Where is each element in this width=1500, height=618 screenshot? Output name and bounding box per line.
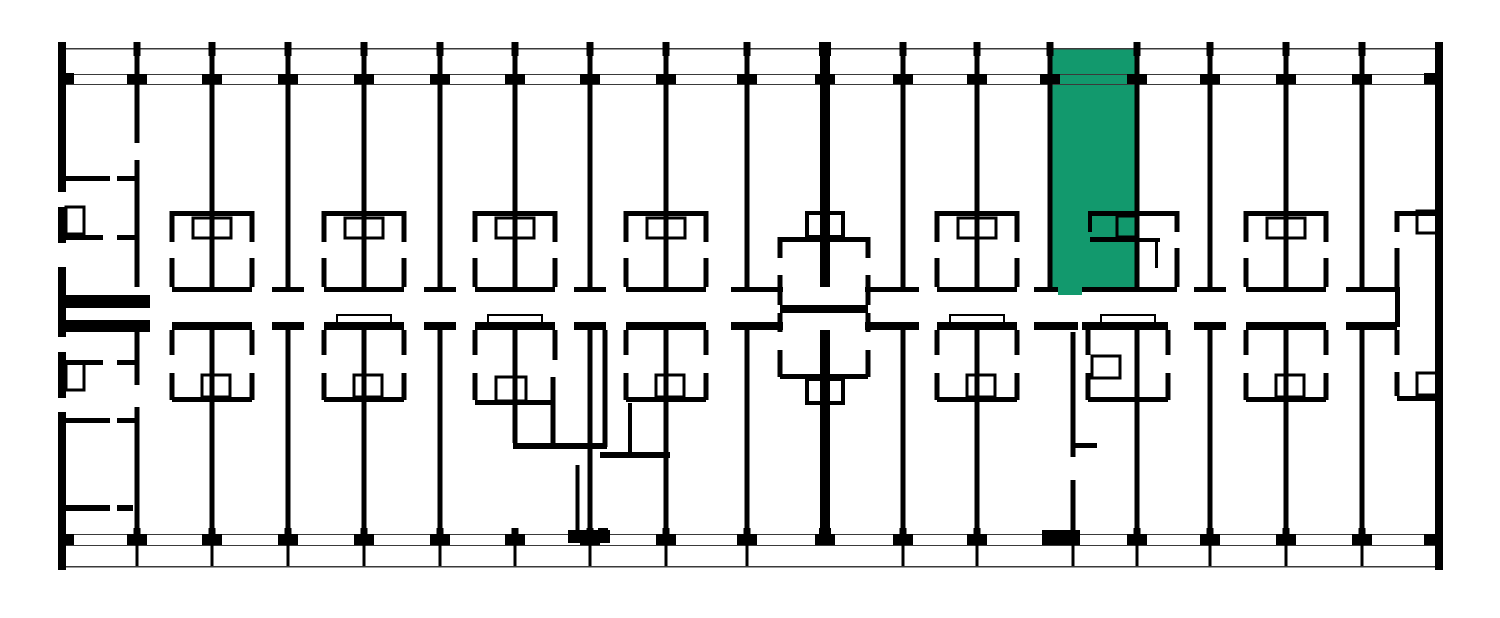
wall-segment — [324, 287, 404, 292]
wall-segment — [58, 295, 150, 308]
column-block — [1283, 528, 1290, 545]
wall-segment — [286, 330, 291, 545]
column-block — [1359, 528, 1366, 545]
fixtures-layer — [66, 207, 1437, 403]
wall-segment — [250, 373, 255, 400]
wall-segment — [778, 350, 783, 377]
wall-segment — [1395, 330, 1400, 355]
balcony-facade-lines-layer — [58, 48, 1443, 568]
wall-segment — [553, 330, 558, 360]
wall-segment — [513, 443, 607, 449]
wall-segment — [475, 211, 555, 216]
column-block — [1361, 545, 1364, 566]
column-block — [656, 74, 676, 84]
wall-segment — [286, 49, 291, 287]
column-block — [1209, 48, 1212, 74]
column-block — [1200, 74, 1220, 84]
wall-segment — [1244, 330, 1249, 355]
wall-segment — [1395, 248, 1400, 287]
wall-segment — [1086, 330, 1091, 355]
wall-segment — [117, 235, 137, 240]
column-block — [512, 528, 519, 545]
wall-segment — [1175, 211, 1180, 232]
fixture-outline — [1417, 373, 1437, 395]
wall-segment — [170, 211, 175, 242]
wall-segment — [117, 176, 137, 181]
wall-segment — [704, 373, 709, 400]
column-block — [1285, 48, 1288, 74]
wall-segment — [250, 258, 255, 287]
wall-segment — [866, 313, 871, 332]
column-block — [744, 528, 751, 545]
wall-segment — [1324, 258, 1329, 287]
column-block — [819, 528, 831, 545]
wall-segment — [935, 330, 940, 355]
wall-segment — [210, 49, 215, 287]
wall-segment — [820, 49, 830, 287]
column-block — [974, 528, 981, 545]
wall-segment — [322, 211, 327, 242]
wall-segment — [1324, 373, 1329, 400]
column-block — [1424, 534, 1440, 545]
fixture-outline — [1092, 356, 1120, 378]
wall-segment — [438, 330, 443, 545]
wall-segment — [820, 330, 830, 545]
wall-segment — [402, 330, 407, 355]
fixture-outline — [202, 375, 230, 397]
wall-segment — [624, 258, 629, 287]
wall-segment — [1194, 322, 1226, 330]
column-block — [287, 48, 290, 74]
column-block — [505, 74, 525, 84]
column-block — [1134, 528, 1141, 545]
wall-segment — [664, 49, 669, 287]
selected-unit-highlight[interactable] — [1058, 286, 1082, 295]
wall-segment — [588, 49, 593, 287]
column-block — [819, 42, 831, 56]
wall-segment — [1395, 211, 1400, 232]
column-block — [134, 528, 141, 545]
column-block — [1209, 545, 1212, 566]
wall-segment — [704, 258, 709, 287]
column-block — [354, 74, 374, 84]
wall-segment — [58, 320, 150, 332]
column-block — [663, 528, 670, 545]
wall-segment — [1346, 322, 1397, 330]
fixture-outline — [656, 375, 684, 397]
wall-segment — [745, 49, 750, 287]
wall-segment — [172, 322, 252, 330]
wall-segment — [1246, 211, 1326, 216]
wall-segment — [588, 330, 593, 545]
wall-segment — [172, 211, 252, 216]
column-block — [514, 48, 517, 74]
wall-segment — [250, 211, 255, 242]
column-block — [58, 73, 74, 84]
column-block — [893, 74, 913, 84]
floor-plan-svg — [0, 0, 1500, 618]
fixture-outline — [950, 315, 1004, 323]
wall-segment — [1071, 480, 1076, 535]
wall-segment — [866, 350, 871, 377]
wall-segment — [624, 373, 629, 400]
wall-segment — [1360, 330, 1365, 545]
fixture-outline — [66, 207, 84, 234]
column-block — [1042, 530, 1080, 545]
wall-segment — [704, 330, 709, 355]
wall-segment — [865, 287, 919, 292]
wall-segment — [473, 373, 478, 400]
column-block — [976, 545, 979, 566]
column-block — [815, 74, 835, 84]
wall-segment — [1015, 211, 1020, 242]
wall-segment — [513, 49, 518, 287]
wall-segment — [600, 452, 670, 458]
fixture-outline — [1276, 375, 1304, 397]
fixture-outline — [967, 375, 995, 397]
wall-segment — [513, 330, 518, 443]
wall-segment — [1244, 373, 1249, 400]
column-block — [136, 48, 139, 74]
wall-segment — [402, 373, 407, 400]
window-opening — [58, 243, 66, 267]
column-block — [1127, 74, 1147, 84]
wall-segment — [553, 211, 558, 242]
wall-segment — [626, 211, 706, 216]
column-block — [58, 534, 74, 545]
walls-layer — [58, 42, 1443, 570]
wall-segment — [1324, 211, 1329, 242]
wall-segment — [272, 287, 304, 292]
column-block — [580, 74, 600, 84]
wall-segment — [1346, 287, 1397, 292]
wall-segment — [1034, 287, 1058, 292]
column-block — [285, 528, 292, 545]
column-block — [211, 545, 214, 566]
wall-segment — [117, 418, 137, 423]
wall-segment — [362, 49, 367, 287]
wall-segment — [866, 237, 871, 258]
column-block — [1040, 74, 1060, 84]
wall-segment — [731, 287, 783, 292]
column-block — [439, 545, 442, 566]
floor-plan-viewport — [0, 0, 1500, 618]
column-block — [1285, 545, 1288, 566]
wall-segment — [553, 258, 558, 287]
wall-segment — [626, 322, 706, 330]
wall-segment — [1137, 211, 1177, 216]
wall-segment — [1324, 330, 1329, 355]
wall-segment — [170, 258, 175, 287]
column-block — [127, 74, 147, 84]
wall-segment — [704, 211, 709, 242]
wall-segment — [1048, 49, 1053, 287]
wall-segment — [1015, 373, 1020, 400]
wall-segment — [935, 258, 940, 287]
column-block — [430, 74, 450, 84]
column-block — [439, 48, 442, 74]
wall-segment — [574, 287, 606, 292]
facade-line — [58, 84, 1443, 85]
column-block — [209, 528, 216, 545]
wall-segment — [975, 49, 980, 287]
wall-segment — [473, 258, 478, 287]
wall-segment — [1435, 42, 1443, 570]
fixture-outline — [488, 315, 542, 323]
window-opening — [58, 398, 66, 412]
wall-segment — [937, 287, 1017, 292]
wall-segment — [901, 49, 906, 287]
wall-segment — [780, 305, 868, 313]
wall-segment — [865, 322, 919, 330]
column-block — [1424, 73, 1440, 84]
fixture-outline — [66, 363, 84, 390]
wall-segment — [664, 330, 669, 545]
wall-segment — [1015, 258, 1020, 287]
wall-segment — [473, 211, 478, 242]
wall-segment — [1246, 322, 1326, 330]
wall-segment — [210, 330, 215, 545]
wall-segment — [1395, 287, 1400, 327]
wall-segment — [424, 322, 456, 330]
wall-segment — [935, 373, 940, 400]
column-block — [746, 48, 749, 74]
window-opening — [58, 337, 66, 352]
wall-segment — [731, 322, 783, 330]
column-block — [902, 545, 905, 566]
column-block — [278, 74, 298, 84]
column-block — [514, 545, 517, 566]
wall-segment — [628, 403, 632, 452]
facade-line — [58, 545, 1443, 546]
wall-segment — [1244, 211, 1249, 242]
wall-segment — [1194, 287, 1226, 292]
wall-segment — [603, 330, 608, 447]
column-block — [202, 74, 222, 84]
wall-segment — [475, 287, 555, 292]
column-block — [598, 528, 608, 543]
wall-segment — [250, 330, 255, 355]
wall-segment — [58, 176, 110, 181]
wall-segment — [778, 237, 783, 258]
wall-segment — [1082, 287, 1177, 292]
wall-segment — [1166, 330, 1171, 355]
wall-segment — [1073, 443, 1097, 448]
column-block — [136, 545, 139, 566]
column-block — [1049, 48, 1052, 74]
column-block — [589, 545, 592, 566]
wall-segment — [1034, 322, 1078, 330]
wall-segment — [1208, 49, 1213, 287]
wall-segment — [778, 275, 783, 305]
column-block — [665, 545, 668, 566]
wall-segment — [1395, 372, 1400, 396]
wall-segment — [745, 330, 750, 545]
wall-segment — [1015, 330, 1020, 355]
wall-segment — [1135, 49, 1140, 287]
wall-segment — [424, 287, 456, 292]
wall-segment — [778, 313, 783, 332]
wall-segment — [402, 211, 407, 242]
wall-segment — [473, 330, 478, 355]
wall-segment — [576, 465, 580, 535]
column-block — [437, 528, 444, 545]
column-block — [902, 48, 905, 74]
fixture-outline — [496, 377, 526, 401]
wall-segment — [1166, 373, 1171, 400]
wall-segment — [1175, 248, 1180, 287]
column-block — [363, 545, 366, 566]
column-block — [1207, 528, 1214, 545]
wall-segment — [624, 330, 629, 355]
fixture-outline — [337, 315, 391, 323]
wall-segment — [117, 360, 137, 365]
column-block — [589, 48, 592, 74]
wall-segment — [1246, 287, 1326, 292]
wall-segment — [438, 49, 443, 287]
wall-segment — [574, 322, 606, 330]
wall-segment — [866, 275, 871, 305]
wall-segment — [551, 377, 556, 443]
wall-segment — [1208, 330, 1213, 545]
wall-segment — [1088, 216, 1092, 232]
fixture-outline — [354, 375, 382, 397]
wall-segment — [135, 407, 140, 545]
column-block — [1072, 545, 1075, 566]
wall-segment — [1135, 330, 1140, 545]
wall-segment — [402, 258, 407, 287]
column-block — [665, 48, 668, 74]
wall-segment — [58, 418, 110, 423]
window-opening — [58, 192, 66, 207]
wall-segment — [1284, 330, 1289, 545]
column-block — [967, 74, 987, 84]
wall-segment — [1086, 373, 1091, 400]
wall-segment — [1071, 332, 1076, 457]
wall-segment — [362, 330, 367, 545]
wall-segment — [937, 211, 1017, 216]
wall-segment — [324, 211, 404, 216]
wall-segment — [1360, 49, 1365, 287]
column-block — [746, 545, 749, 566]
column-block — [1352, 74, 1372, 84]
wall-segment — [1088, 397, 1168, 402]
column-block — [1136, 545, 1139, 566]
wall-segment — [322, 330, 327, 355]
column-block — [1136, 48, 1139, 74]
wall-segment — [58, 235, 103, 240]
column-block — [211, 48, 214, 74]
wall-segment — [322, 373, 327, 400]
column-block — [363, 48, 366, 74]
column-block — [1361, 48, 1364, 74]
wall-segment — [1284, 49, 1289, 287]
fixture-outline — [1101, 315, 1155, 323]
wall-segment — [58, 505, 110, 511]
wall-segment — [135, 330, 140, 385]
wall-segment — [170, 330, 175, 355]
wall-segment — [272, 322, 304, 330]
column-block — [976, 48, 979, 74]
facade-line — [58, 566, 1443, 568]
wall-segment — [626, 287, 706, 292]
column-block — [900, 528, 907, 545]
wall-segment — [935, 211, 940, 242]
wall-segment — [1155, 238, 1158, 268]
wall-segment — [172, 287, 252, 292]
column-block — [361, 528, 368, 545]
wall-segment — [624, 211, 629, 242]
wall-segment — [1244, 258, 1249, 287]
wall-segment — [322, 258, 327, 287]
wall-segment — [901, 330, 906, 545]
wall-segment — [1397, 396, 1440, 401]
column-block — [737, 74, 757, 84]
wall-segment — [117, 505, 133, 511]
column-block — [287, 545, 290, 566]
column-block — [1276, 74, 1296, 84]
wall-segment — [975, 330, 980, 545]
wall-segment — [170, 373, 175, 400]
